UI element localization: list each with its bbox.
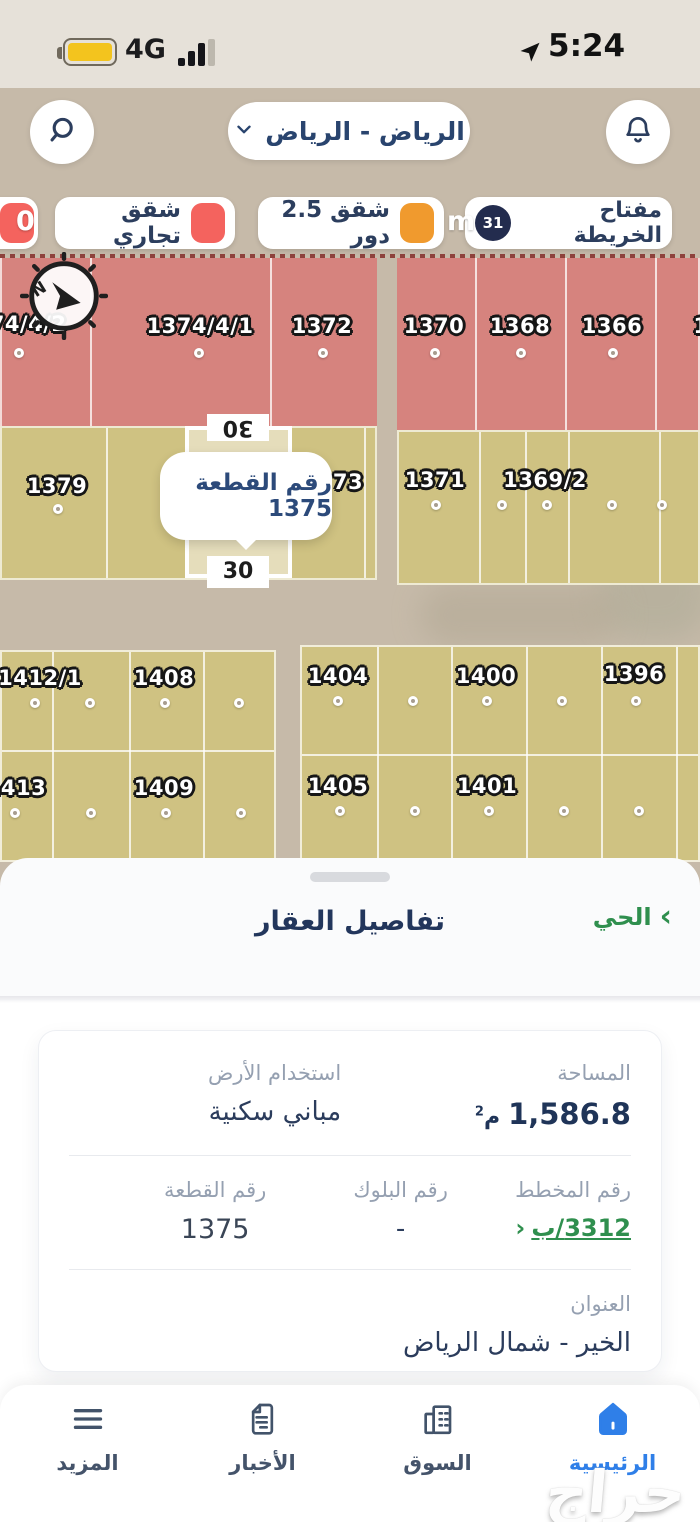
plan-number-link[interactable]: 3312/ب xyxy=(531,1214,631,1242)
parcel-dot xyxy=(318,348,328,358)
legend-color-swatch xyxy=(400,203,434,243)
battery-icon xyxy=(63,38,117,66)
parcel-dot xyxy=(30,698,40,708)
plan-number-label: رقم المخطط xyxy=(474,1178,631,1202)
parcel-dot xyxy=(53,504,63,514)
land-use-label: استخدام الأرض xyxy=(79,1061,341,1085)
parcel-dot xyxy=(410,806,420,816)
search-button[interactable] xyxy=(30,100,94,164)
parcel-dot xyxy=(634,806,644,816)
notifications-button[interactable] xyxy=(606,100,670,164)
parcel-dot xyxy=(484,806,494,816)
parcel-border xyxy=(565,258,567,430)
parcel-border xyxy=(270,258,272,426)
haraj-watermark: حراج xyxy=(543,1458,689,1522)
parcel-border xyxy=(364,428,366,578)
compass-icon[interactable]: N xyxy=(20,252,108,344)
parcel-dot xyxy=(542,500,552,510)
map-road-patch xyxy=(420,585,620,645)
legend-color-swatch xyxy=(191,203,225,243)
parcel-border xyxy=(525,432,527,583)
details-row-numbers: رقم المخطط 3312/ب ‹ رقم البلوك - رقم الق… xyxy=(69,1178,631,1245)
buildings-icon xyxy=(418,1399,458,1443)
area-label: المساحة xyxy=(406,1061,631,1085)
parcel-border xyxy=(106,428,108,578)
home-icon xyxy=(593,1399,633,1443)
map-scale-fragment-m: m xyxy=(447,206,475,237)
parcel-border xyxy=(479,432,481,583)
parcel-label[interactable]: 1401 xyxy=(447,774,527,798)
parcel-label[interactable]: 1396 xyxy=(594,662,674,686)
parcel-label[interactable]: 1379 xyxy=(17,474,97,498)
land-use-value: مباني سكنية xyxy=(79,1097,341,1127)
parcel-dot xyxy=(430,348,440,358)
area-unit: م2 xyxy=(475,1105,500,1130)
details-row-area: المساحة 1,586.8م2 استخدام الأرض مباني سك… xyxy=(69,1061,631,1131)
sheet-drag-handle[interactable] xyxy=(310,872,390,882)
property-details-card: المساحة 1,586.8م2 استخدام الأرض مباني سك… xyxy=(38,1030,662,1372)
parcel-dot xyxy=(607,500,617,510)
parcel-label[interactable]: 1405 xyxy=(298,774,378,798)
parcel-dot xyxy=(431,500,441,510)
parcel-tooltip: رقم القطعة 1375 xyxy=(160,452,332,540)
parcel-label[interactable]: 1409 xyxy=(124,776,204,800)
parcel-label[interactable]: 1368 xyxy=(480,314,560,338)
parcel-label[interactable]: 1372 xyxy=(282,314,362,338)
nav-item-label: السوق xyxy=(403,1451,471,1475)
parcel-dot xyxy=(608,348,618,358)
parcel-dot xyxy=(234,698,244,708)
region-selector[interactable]: الرياض - الرياض xyxy=(228,102,470,160)
parcel-dot xyxy=(10,808,20,818)
parcel-number-label: رقم القطعة xyxy=(103,1178,328,1202)
parcel-label[interactable]: 1412/1 xyxy=(0,666,92,690)
map-key-chip[interactable]: مفتاح الخريطة 31 xyxy=(465,197,672,249)
legend-chip-label: شقق تجاري xyxy=(65,197,181,249)
parcel-dot xyxy=(236,808,246,818)
nav-item-market[interactable]: السوق xyxy=(350,1399,525,1522)
parcel-dot xyxy=(86,808,96,818)
clock-time: 5:24 xyxy=(548,28,625,64)
parcel-dot xyxy=(85,698,95,708)
card-divider xyxy=(69,1269,631,1270)
legend-chip-commercial[interactable]: شقق تجاري xyxy=(55,197,235,249)
parcel-dot xyxy=(161,808,171,818)
district-link-label: الحي xyxy=(593,903,652,931)
address-value: الخير - شمال الرياض xyxy=(69,1328,631,1358)
chevron-right-icon: › xyxy=(660,902,672,932)
parcel-dimension-top: 30 xyxy=(207,414,269,441)
parcel-dot xyxy=(160,698,170,708)
app-screen: 30 30 1374/4/2 1374/4/1 1372 1370 1368 1… xyxy=(0,0,700,1522)
parcel-label[interactable]: 1371 xyxy=(395,468,475,492)
parcel-dot xyxy=(657,500,667,510)
parcel-dot xyxy=(516,348,526,358)
hamburger-menu-icon xyxy=(68,1399,108,1443)
nav-item-label: الأخبار xyxy=(229,1451,296,1475)
parcel-border xyxy=(2,750,274,752)
parcel-dot xyxy=(631,696,641,706)
address-label: العنوان xyxy=(69,1292,631,1316)
parcel-border xyxy=(568,432,570,583)
nav-item-more[interactable]: المزيد xyxy=(0,1399,175,1522)
parcel-number-value: 1375 xyxy=(103,1214,328,1245)
bell-icon xyxy=(621,113,655,151)
parcel-label[interactable]: 1 xyxy=(686,314,700,338)
parcel-dot xyxy=(482,696,492,706)
location-arrow-icon xyxy=(518,40,542,68)
details-row-address: العنوان الخير - شمال الرياض xyxy=(69,1292,631,1358)
parcel-border xyxy=(302,754,698,756)
parcel-border xyxy=(655,258,657,430)
property-sheet: تفاصيل العقار › الحي xyxy=(0,858,700,1000)
parcel-dot xyxy=(557,696,567,706)
parcel-block-red-right[interactable] xyxy=(397,258,700,430)
legend-chip-label: شقق 2.5 دور xyxy=(268,197,390,249)
parcel-label[interactable]: 1408 xyxy=(124,666,204,690)
map-scale-fragment-0: 0 xyxy=(16,206,35,237)
block-number-value: - xyxy=(328,1214,474,1244)
parcel-dot xyxy=(497,500,507,510)
parcel-label[interactable]: 1413 xyxy=(0,776,56,800)
area-value: 1,586.8 xyxy=(508,1097,631,1131)
parcel-label[interactable]: 1369/2 xyxy=(495,468,595,492)
parcel-label[interactable]: 1400 xyxy=(446,664,526,688)
map-key-label: مفتاح الخريطة xyxy=(521,198,662,248)
nav-item-news[interactable]: الأخبار xyxy=(175,1399,350,1522)
parcel-dot xyxy=(335,806,345,816)
region-selector-label: الرياض - الرياض xyxy=(265,117,465,146)
map-key-count-badge: 31 xyxy=(475,205,511,241)
nav-item-label: المزيد xyxy=(56,1451,118,1475)
chevron-down-icon xyxy=(233,117,255,146)
news-document-icon xyxy=(243,1399,283,1443)
parcel-label[interactable]: 1404 xyxy=(298,664,378,688)
parcel-dot xyxy=(14,348,24,358)
network-type-label: 4G xyxy=(125,34,166,65)
parcel-dot xyxy=(408,696,418,706)
legend-chip-2-5-floors[interactable]: شقق 2.5 دور xyxy=(258,197,444,249)
sheet-divider xyxy=(0,996,700,1003)
parcel-border xyxy=(475,258,477,430)
parcel-label[interactable]: 1374/4/1 xyxy=(140,314,260,338)
card-divider xyxy=(69,1155,631,1156)
district-link[interactable]: › الحي xyxy=(593,902,672,932)
parcel-dimension-bottom: 30 xyxy=(207,556,269,588)
parcel-dot xyxy=(194,348,204,358)
parcel-dot xyxy=(333,696,343,706)
parcel-label[interactable]: 1370 xyxy=(394,314,474,338)
block-number-label: رقم البلوك xyxy=(328,1178,474,1202)
parcel-dot xyxy=(559,806,569,816)
signal-bars-icon xyxy=(178,38,215,66)
chevron-left-icon: ‹ xyxy=(515,1214,525,1242)
search-icon xyxy=(45,113,79,151)
parcel-label[interactable]: 1366 xyxy=(572,314,652,338)
